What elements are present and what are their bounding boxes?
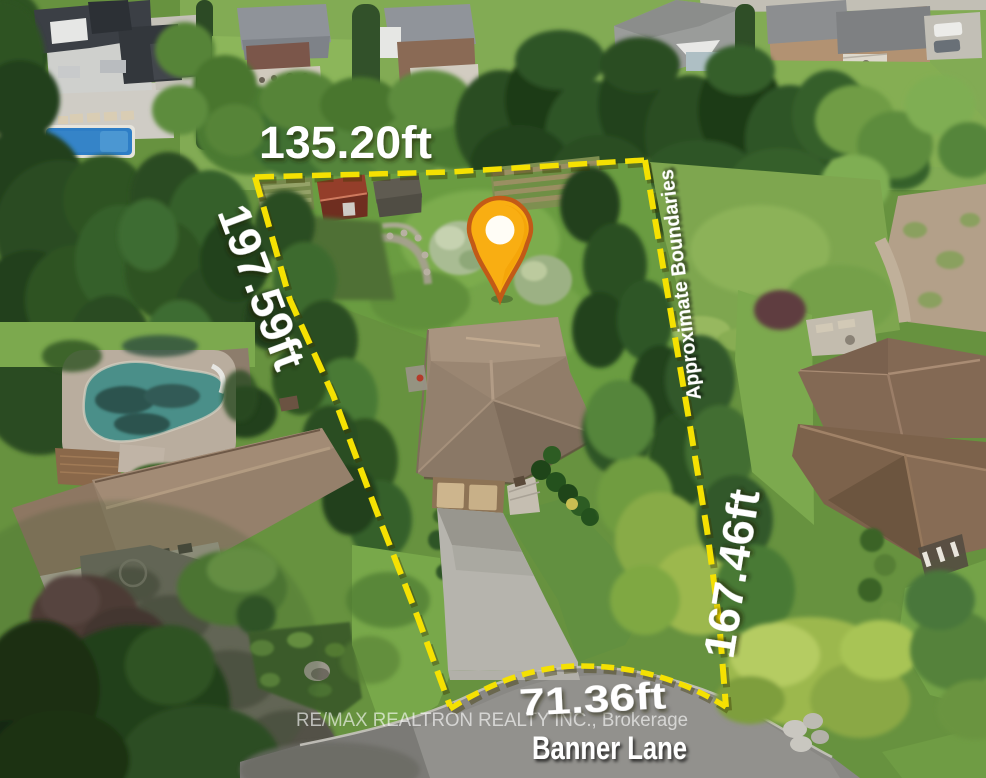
svg-text:71.36ft: 71.36ft [518, 675, 667, 725]
svg-text:135.20ft: 135.20ft [259, 117, 432, 168]
svg-text:Banner Lane: Banner Lane [532, 730, 687, 766]
